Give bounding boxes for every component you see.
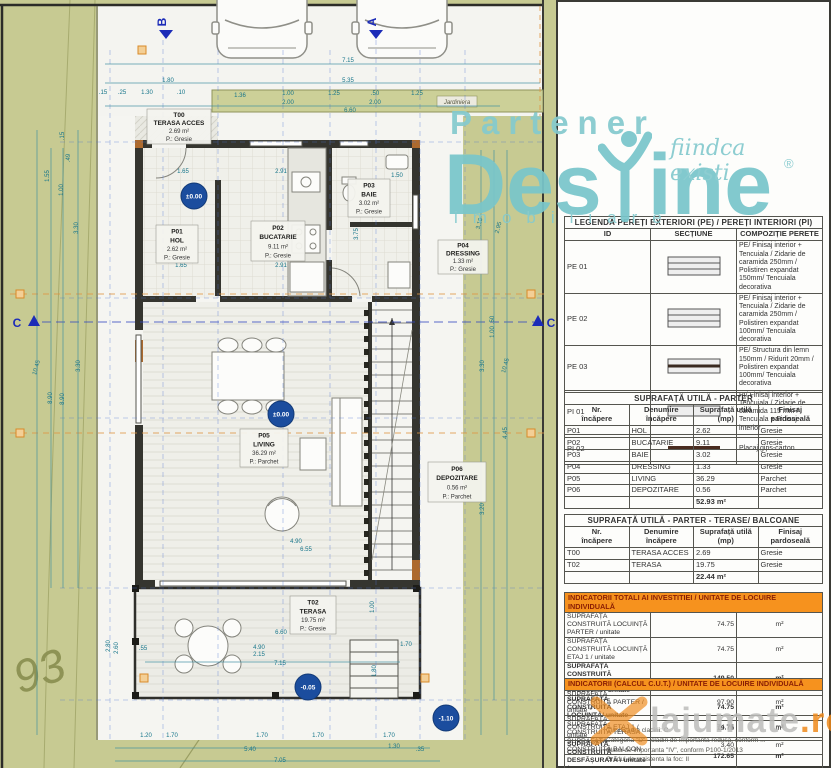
table-cell	[565, 571, 630, 583]
table-cell: BAIE	[629, 449, 694, 461]
dimension-label: 3.30	[74, 222, 80, 234]
dimension-label: 1.70	[383, 733, 395, 739]
area-row: P03BAIE3.02Gresie	[565, 449, 823, 461]
col-nr: Nr. încăpere	[565, 405, 630, 426]
table-cell: Gresie	[758, 461, 823, 473]
dimension-label: 8.90	[60, 393, 66, 405]
svg-text:HOL: HOL	[170, 237, 184, 244]
indicators-cut-title: INDICATORII (CALCUL C.U.T.) / UNITATE DE…	[565, 679, 823, 691]
total-area: 52.93 m²	[694, 497, 759, 509]
table-cell	[758, 497, 823, 509]
dimension-label: 4.90	[290, 539, 302, 545]
area-row: P05LIVING36.29Parchet	[565, 473, 823, 485]
room-label: T00TERASA ACCES2.69 m²P.: Gresie	[147, 109, 211, 144]
total-row: 52.93 m²	[565, 497, 823, 509]
dimension-label: 1.36	[234, 93, 246, 99]
table-cell: Gresie	[758, 449, 823, 461]
indicator-row: SUPRAFAȚĂ CONSTRUITĂ LOCUINȚĂ PARTER / u…	[565, 613, 823, 638]
svg-text:1.33 m²: 1.33 m²	[453, 259, 473, 265]
table-cell: P03	[565, 449, 630, 461]
table-cell: BUCATARIE	[629, 437, 694, 449]
room-label: P06DEPOZITARE0.56 m²P.: Parchet	[428, 462, 486, 502]
note-line: Clasa de importanta "IV", conform P100-1…	[606, 746, 816, 756]
svg-text:P04: P04	[457, 243, 469, 250]
svg-text:C: C	[13, 316, 22, 330]
legend-col-composition: COMPOZIȚIE PERETE	[737, 229, 823, 241]
table-cell: TERASA	[629, 559, 694, 571]
dimension-label: 1.70	[400, 642, 412, 648]
svg-text:±0.00: ±0.00	[186, 193, 203, 200]
level-marker: ±0.00	[268, 401, 294, 427]
table-cell	[758, 571, 823, 583]
wall-section-icon	[651, 241, 737, 294]
indicator-row: SUPRAFAȚĂ CONSTRUITĂ PARTER / unitate *9…	[565, 690, 823, 715]
total-row: 22.44 m²	[565, 571, 823, 583]
indicator-value: 74.75	[651, 638, 737, 663]
table-cell: Parchet	[758, 485, 823, 497]
table-cell: 0.56	[694, 485, 759, 497]
svg-text:19.75 m²: 19.75 m²	[301, 618, 325, 624]
svg-text:9.11 m²: 9.11 m²	[268, 244, 288, 250]
area-row: P02BUCATARIE9.11Gresie	[565, 437, 823, 449]
legend-id: PE 03	[565, 346, 651, 390]
svg-text:BAIE: BAIE	[361, 191, 377, 198]
dimension-label: 1.25	[411, 91, 423, 97]
table-cell: P02	[565, 437, 630, 449]
dimension-label: .25	[118, 90, 127, 96]
wall-section-icon	[651, 293, 737, 346]
table-cell: P06	[565, 485, 630, 497]
terase-table-title: SUPRAFAȚĂ UTILĂ - PARTER - TERASE/ BALCO…	[565, 515, 823, 527]
area-row: T00TERASA ACCES2.69Gresie	[565, 548, 823, 560]
table-cell: P01	[565, 426, 630, 438]
dimension-label: 8.90	[48, 392, 54, 404]
dimension-label: 1.20	[140, 733, 152, 739]
table-cell: Gresie	[758, 437, 823, 449]
area-row: P01HOL2.62Gresie	[565, 426, 823, 438]
table-cell: Parchet	[758, 473, 823, 485]
table-cell: 3.02	[694, 449, 759, 461]
room-label: P01HOL2.62 m²P.: Gresie	[156, 225, 198, 263]
floor-plan-screenshot: 93 Jardiniera	[0, 0, 831, 768]
svg-text:TERASA ACCES: TERASA ACCES	[154, 120, 205, 127]
dimension-label: .55	[139, 646, 148, 652]
table-cell: T00	[565, 548, 630, 560]
table-cell	[565, 497, 630, 509]
table-cell: 1.33	[694, 461, 759, 473]
wall-section-icon	[666, 254, 722, 278]
svg-text:P.: Gresie: P.: Gresie	[166, 137, 193, 143]
dimension-label: 7.05	[274, 758, 286, 764]
legend-col-section: SECȚIUNE	[651, 229, 737, 241]
svg-text:2.62 m²: 2.62 m²	[167, 247, 187, 253]
legend-id: PE 01	[565, 241, 651, 294]
svg-text:P.: Parchet: P.: Parchet	[443, 494, 472, 500]
indicators-investitie-title: INDICATORII TOTALI AI INVESTITIEI / UNIT…	[565, 593, 823, 613]
col-nr: Nr. încăpere	[565, 527, 630, 548]
dimension-label: 2.60	[114, 642, 120, 654]
room-label: T02TERASA19.75 m²P.: Gresie	[290, 596, 336, 634]
svg-text:P.: Gresie: P.: Gresie	[300, 627, 327, 633]
dimension-label: 1.70	[256, 733, 268, 739]
dimension-label: 1.70	[166, 733, 178, 739]
svg-text:P.: Gresie: P.: Gresie	[450, 267, 477, 273]
area-row: P04DRESSING1.33Gresie	[565, 461, 823, 473]
parter-area-table: SUPRAFAȚĂ UTILĂ - PARTER Nr. încăpere De…	[564, 392, 823, 509]
dimension-label: .35	[416, 747, 425, 753]
level-marker: -0.05	[295, 674, 321, 700]
dimension-label: 2.00	[282, 100, 294, 106]
dimension-label: 1.65	[177, 169, 189, 175]
dimension-label: 1.00	[370, 601, 376, 613]
dimension-label: 2.00	[369, 100, 381, 106]
level-marker: ±0.00	[181, 183, 207, 209]
svg-text:C: C	[547, 316, 556, 330]
jardiniera-label: Jardiniera	[443, 100, 471, 106]
legend-col-id: ID	[565, 229, 651, 241]
dimension-label: 2.80	[106, 640, 112, 652]
svg-text:B: B	[155, 17, 169, 26]
legend-composition: PE/ Finisaj interior + Tencuiala / Zidar…	[737, 293, 823, 346]
room-label: P02BUCATARIE9.11 m²P.: Gresie	[251, 221, 305, 261]
svg-text:P05: P05	[258, 433, 270, 440]
dimension-label: 2.91	[275, 263, 287, 269]
table-cell: 19.75	[694, 559, 759, 571]
table-cell: LIVING	[629, 473, 694, 485]
dimension-label: 1.80	[372, 665, 378, 677]
dimension-label: .49	[66, 153, 72, 162]
svg-text:P01: P01	[171, 229, 183, 236]
svg-text:-1.10: -1.10	[439, 715, 454, 722]
parter-table-title: SUPRAFAȚĂ UTILĂ - PARTER	[565, 393, 823, 405]
drawing-sheet-panel: LEGENDĂ PEREȚI EXTERIORI (PE) / PEREȚI I…	[556, 0, 831, 768]
svg-text:P.: Parchet: P.: Parchet	[250, 460, 279, 466]
table-cell: TERASA ACCES	[629, 548, 694, 560]
legend-row: PE 03PE/ Structura din lemn 150mm / Ridu…	[565, 346, 823, 390]
svg-text:P06: P06	[451, 466, 463, 473]
indicator-row: SUPRAFAȚĂ CONSTRUITĂ LOCUINȚĂ ETAJ 1 / u…	[565, 638, 823, 663]
col-name: Denumire încăpere	[629, 527, 694, 548]
table-cell: DEPOZITARE	[629, 485, 694, 497]
dimension-label: 1.80	[162, 78, 174, 84]
dimension-label: 3.75	[354, 228, 360, 240]
room-label: P03BAIE3.02 m²P.: Gresie	[348, 179, 390, 217]
indicator-value: 74.75	[651, 613, 737, 638]
note-line: Categoria "D" - cladiri de importanta re…	[606, 736, 816, 746]
total-area: 22.44 m²	[694, 571, 759, 583]
area-row: T02TERASA19.75Gresie	[565, 559, 823, 571]
table-cell	[629, 497, 694, 509]
room-label: P05LIVING36.29 m²P.: Parchet	[240, 429, 288, 467]
svg-text:P.: Gresie: P.: Gresie	[356, 210, 383, 216]
room-label: P04DRESSING1.33 m²P.: Gresie	[438, 240, 488, 274]
dimension-label: 1.65	[175, 263, 187, 269]
dimension-label: 3.30	[480, 360, 486, 372]
dimension-label: 1.55	[45, 170, 51, 182]
classification-notes: Clasificarea cladirii: CCategoria "D" - …	[606, 726, 816, 765]
legend-row: PE 01PE/ Finisaj interior + Tencuiala / …	[565, 241, 823, 294]
dimension-label: 6.60	[344, 108, 356, 114]
legend-row: PE 02PE/ Finisaj interior + Tencuiala / …	[565, 293, 823, 346]
table-cell: Gresie	[758, 548, 823, 560]
svg-text:T00: T00	[173, 112, 185, 119]
note-line: Gradul de rezistenta la foc: II	[606, 755, 816, 765]
dimension-label: 1.00	[282, 91, 294, 97]
dimension-label: .50	[490, 315, 496, 324]
dimension-label: 1.30	[141, 90, 153, 96]
svg-text:TERASA: TERASA	[300, 608, 327, 615]
table-cell: Gresie	[758, 426, 823, 438]
svg-text:DRESSING: DRESSING	[446, 250, 480, 257]
indicator-value: 97.90	[651, 690, 737, 715]
table-cell: 36.29	[694, 473, 759, 485]
area-row: P06DEPOZITARE0.56Parchet	[565, 485, 823, 497]
svg-text:BUCATARIE: BUCATARIE	[259, 234, 297, 241]
terase-area-block: SUPRAFAȚĂ UTILĂ - PARTER - TERASE/ BALCO…	[564, 514, 823, 584]
dimension-label: .10	[177, 90, 186, 96]
col-name: Denumire încăpere	[629, 405, 694, 426]
col-finish: Finisaj pardoseală	[758, 405, 823, 426]
svg-text:LIVING: LIVING	[253, 441, 275, 448]
indicator-label: SUPRAFAȚĂ CONSTRUITĂ LOCUINȚĂ PARTER / u…	[565, 613, 651, 638]
svg-text:T02: T02	[307, 600, 319, 607]
svg-text:P.: Gresie: P.: Gresie	[164, 256, 191, 262]
indicator-label: SUPRAFAȚĂ CONSTRUITĂ PARTER / unitate *	[565, 690, 651, 715]
svg-text:P02: P02	[272, 225, 284, 232]
indicator-unit: m²	[737, 638, 823, 663]
dimension-label: 2.15	[253, 652, 265, 658]
legend-id: PE 02	[565, 293, 651, 346]
svg-text:P03: P03	[363, 183, 375, 190]
table-cell: 2.62	[694, 426, 759, 438]
dimension-label: 4.90	[253, 645, 265, 651]
wall-section-icon	[666, 354, 722, 378]
dimension-label: 4.45	[503, 427, 509, 439]
table-cell: Gresie	[758, 559, 823, 571]
dimension-label: 7.15	[274, 661, 286, 667]
legend-composition: PE/ Finisaj interior + Tencuiala / Zidar…	[737, 241, 823, 294]
table-cell: P04	[565, 461, 630, 473]
dimension-label: .15	[99, 90, 108, 96]
dimension-label: 5.40	[244, 747, 256, 753]
indicator-label: SUPRAFAȚĂ CONSTRUITĂ LOCUINȚĂ ETAJ 1 / u…	[565, 638, 651, 663]
dimension-label: 1.50	[391, 173, 403, 179]
note-line: Clasificarea cladirii: C	[606, 726, 816, 736]
table-cell: DRESSING	[629, 461, 694, 473]
dimension-label: .15	[60, 131, 66, 140]
dimension-label: 3.30	[76, 360, 82, 372]
svg-text:36.29 m²: 36.29 m²	[252, 451, 276, 457]
table-cell: P05	[565, 473, 630, 485]
indicator-unit: m²	[737, 690, 823, 715]
svg-text:-0.05: -0.05	[301, 684, 316, 691]
svg-text:DEPOZITARE: DEPOZITARE	[436, 475, 478, 482]
dimension-label: 1.30	[388, 744, 400, 750]
dimension-label: 1.70	[312, 733, 324, 739]
terase-area-table: SUPRAFAȚĂ UTILĂ - PARTER - TERASE/ BALCO…	[564, 514, 823, 584]
svg-text:A: A	[365, 17, 379, 26]
dimension-label: 6.55	[300, 547, 312, 553]
parter-area-block: SUPRAFAȚĂ UTILĂ - PARTER Nr. încăpere De…	[564, 392, 823, 509]
dimension-label: 7.15	[342, 58, 354, 64]
svg-text:3.02 m²: 3.02 m²	[359, 201, 379, 207]
dimension-label: 3.20	[480, 503, 486, 515]
dimension-label: .50	[371, 91, 380, 97]
table-cell: 2.69	[694, 548, 759, 560]
dimension-label: 6.60	[275, 630, 287, 636]
table-cell: 9.11	[694, 437, 759, 449]
table-cell	[629, 571, 694, 583]
wall-section-icon	[651, 346, 737, 390]
svg-text:2.69 m²: 2.69 m²	[169, 129, 189, 135]
col-area: Suprafață utilă (mp)	[694, 527, 759, 548]
table-cell: HOL	[629, 426, 694, 438]
svg-text:P.: Gresie: P.: Gresie	[265, 253, 292, 259]
dimension-label: 1.25	[328, 91, 340, 97]
indicator-unit: m²	[737, 613, 823, 638]
legend-title: LEGENDĂ PEREȚI EXTERIORI (PE) / PEREȚI I…	[565, 217, 823, 229]
dimension-label: 2.91	[275, 169, 287, 175]
dimension-label: 5.35	[342, 78, 354, 84]
svg-text:±0.00: ±0.00	[273, 411, 290, 418]
dimension-label: 1.00	[490, 326, 496, 338]
col-finish: Finisaj pardoseală	[758, 527, 823, 548]
svg-text:0.56 m²: 0.56 m²	[447, 485, 467, 491]
dimension-label: 1.00	[59, 184, 65, 196]
wall-section-icon	[666, 306, 722, 330]
level-marker: -1.10	[433, 705, 459, 731]
table-cell: T02	[565, 559, 630, 571]
floor-plan-drawing: 93 Jardiniera	[0, 0, 558, 768]
col-area: Suprafață utilă (mp)	[694, 405, 759, 426]
legend-composition: PE/ Structura din lemn 150mm / Ridurit 2…	[737, 346, 823, 390]
